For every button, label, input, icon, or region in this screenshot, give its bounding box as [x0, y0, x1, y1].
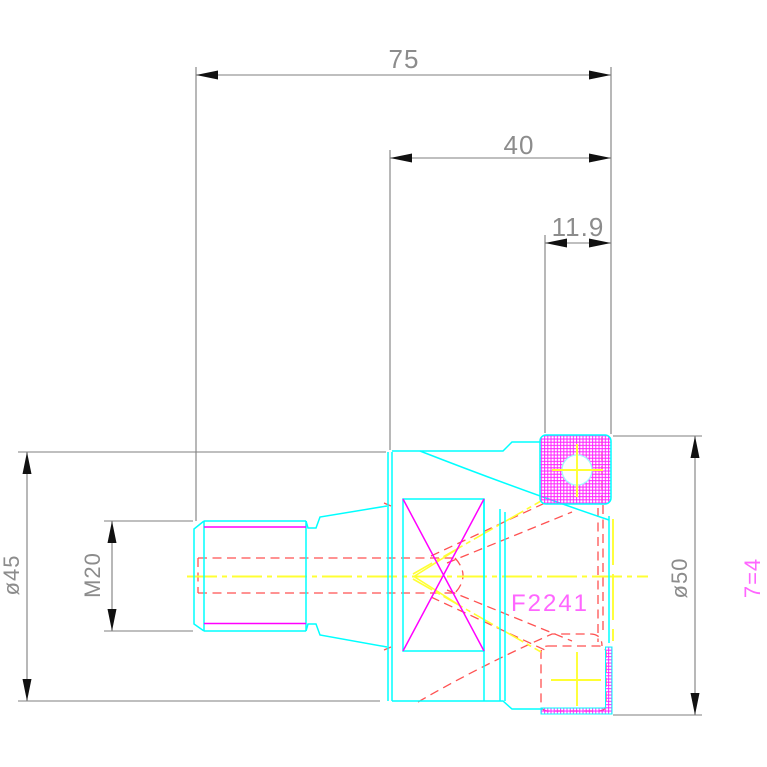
extension-lines	[18, 67, 702, 715]
head-top-edge	[392, 442, 540, 451]
thread-bore-end-arc	[455, 558, 463, 593]
dimension-texts: 75 40 11.9 ø45 M20 ø50	[0, 44, 692, 598]
neck-taper-top	[306, 506, 387, 528]
dim-text-head-length: 40	[504, 130, 535, 160]
top-insert	[540, 435, 611, 504]
hidden-flute-arc	[418, 634, 602, 702]
cad-drawing-svg: 75 40 11.9 ø45 M20 ø50 F2241 7=4	[0, 0, 767, 767]
dim-text-overall-length: 75	[389, 44, 420, 74]
dim-text-thread-size: M20	[80, 552, 105, 598]
part-number-label: F2241	[511, 590, 589, 617]
thread-and-cross-lines	[204, 499, 484, 651]
flute-count-label: 7=4	[740, 558, 765, 598]
bottom-insert-centerlines	[551, 652, 601, 706]
dim-text-insert-offset: 11.9	[552, 212, 605, 242]
dim-text-body-diameter: ø45	[0, 555, 24, 596]
labels: F2241 7=4	[511, 558, 765, 617]
dim-text-cutting-diameter: ø50	[667, 558, 692, 599]
bottom-insert-hidden-outline	[541, 646, 606, 711]
cad-canvas: 75 40 11.9 ø45 M20 ø50 F2241 7=4	[0, 0, 767, 767]
neck-taper-bottom	[306, 624, 387, 647]
dimension-lines	[27, 75, 695, 715]
head-bottom-edge	[392, 701, 543, 709]
